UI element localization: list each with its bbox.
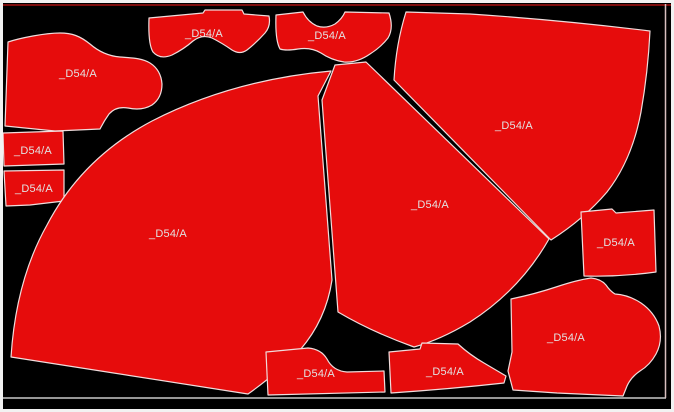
pattern-piece-left-rect-1[interactable]: _D54/A bbox=[3, 131, 64, 166]
marker-window: _D54/A _D54/A _D54/A _D54/A _D54/A _D54/… bbox=[0, 0, 674, 412]
piece-label: _D54/A bbox=[307, 30, 346, 42]
piece-label: _D54/A bbox=[296, 368, 335, 380]
piece-label: _D54/A bbox=[58, 68, 97, 80]
piece-label: _D54/A bbox=[546, 332, 585, 344]
pattern-piece-right-square[interactable]: _D54/A bbox=[581, 209, 656, 276]
marker-canvas[interactable]: _D54/A _D54/A _D54/A _D54/A _D54/A _D54/… bbox=[0, 0, 674, 412]
piece-label: _D54/A bbox=[148, 228, 187, 240]
piece-label: _D54/A bbox=[13, 145, 52, 157]
piece-label: _D54/A bbox=[596, 237, 635, 249]
piece-label: _D54/A bbox=[14, 183, 53, 195]
piece-label: _D54/A bbox=[184, 28, 223, 40]
piece-label: _D54/A bbox=[425, 366, 464, 378]
pattern-piece-left-rect-2[interactable]: _D54/A bbox=[4, 170, 64, 206]
piece-label: _D54/A bbox=[410, 199, 449, 211]
piece-label: _D54/A bbox=[494, 120, 533, 132]
